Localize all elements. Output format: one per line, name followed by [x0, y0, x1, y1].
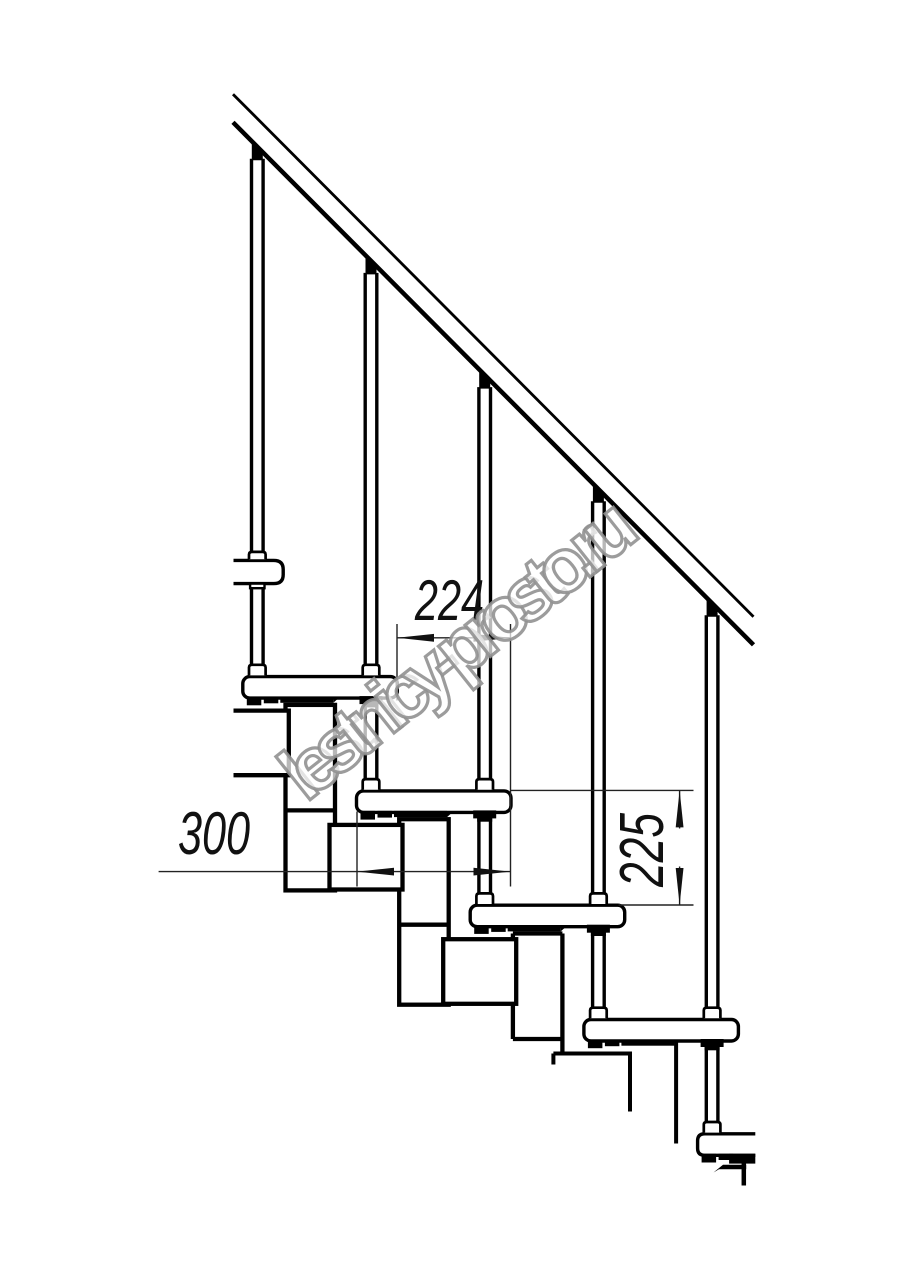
svg-text:300: 300 — [178, 801, 250, 868]
svg-text:225: 225 — [608, 812, 677, 888]
